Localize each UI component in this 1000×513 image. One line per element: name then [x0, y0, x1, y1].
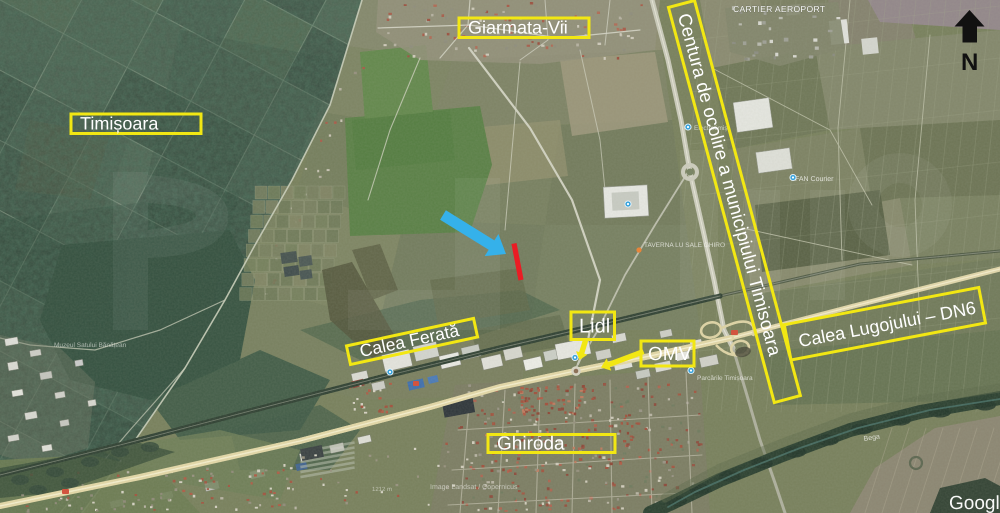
svg-text:N: N: [961, 49, 978, 76]
svg-text:OMV: OMV: [648, 344, 692, 365]
svg-text:Timișoara: Timișoara: [80, 114, 159, 134]
svg-text:Lidl: Lidl: [579, 316, 610, 338]
svg-text:Google: Google: [949, 493, 1000, 513]
svg-text:FAN Courier: FAN Courier: [795, 175, 834, 183]
svg-text:Image Landsat / Copernicus: Image Landsat / Copernicus: [430, 483, 518, 491]
svg-text:1212 m: 1212 m: [372, 486, 392, 493]
svg-text:Giarmata-Vii: Giarmata-Vii: [468, 18, 568, 38]
svg-text:CARTIER AEROPORT: CARTIER AEROPORT: [733, 4, 826, 14]
svg-text:TAVERNA LU SALE GHIRO: TAVERNA LU SALE GHIRO: [644, 242, 725, 249]
svg-text:Parcările Timișoara: Parcările Timișoara: [697, 375, 753, 382]
svg-text:Ghiroda: Ghiroda: [497, 434, 565, 455]
svg-text:Muzeul Satului Bănățean: Muzeul Satului Bănățean: [54, 342, 127, 349]
